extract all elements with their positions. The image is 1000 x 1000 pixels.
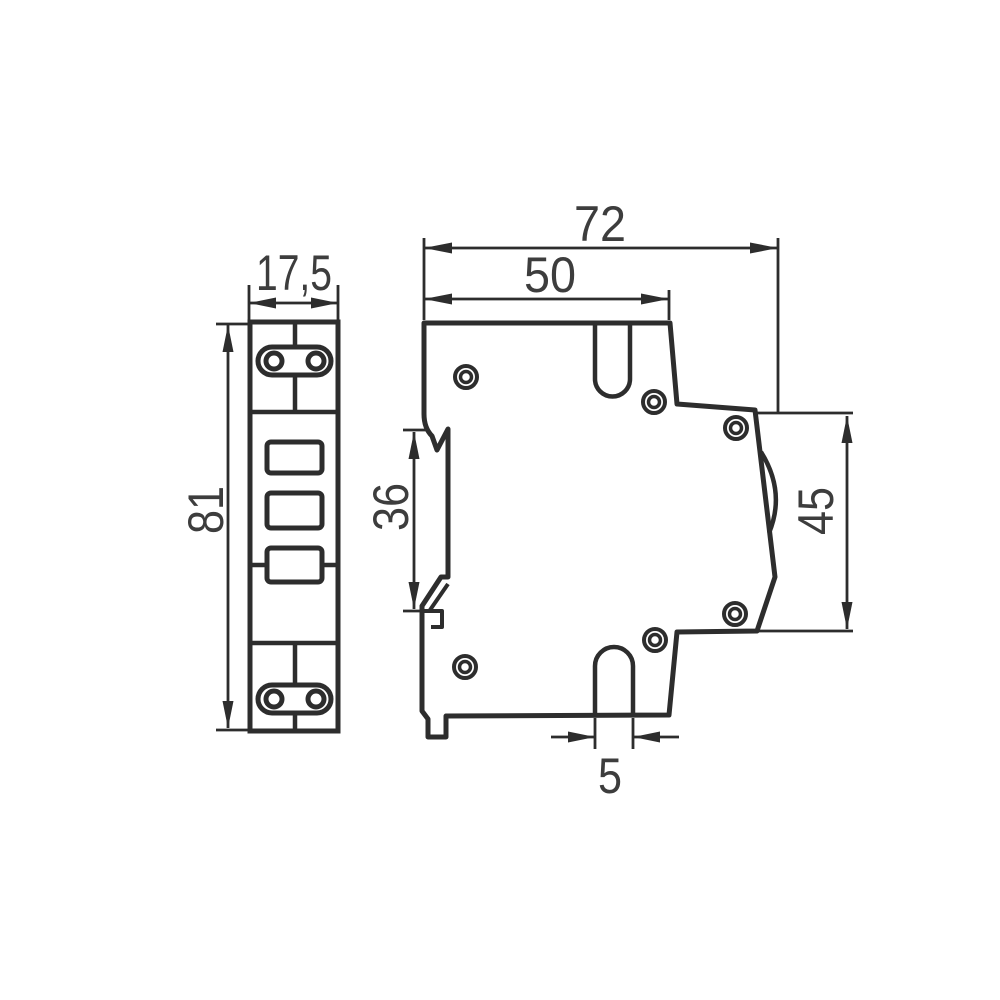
rivet-inner (730, 609, 741, 620)
rivet-inner (650, 635, 661, 646)
dim-slot-width: 5 (551, 718, 679, 804)
rivet-icon (724, 603, 746, 625)
technical-drawing: 17,5 81 72 50 (0, 0, 1000, 1000)
arrowhead (750, 243, 778, 254)
rivet-outer (644, 629, 666, 651)
side-view (422, 323, 776, 737)
rivet-outer (725, 417, 747, 439)
rivet-outer (643, 391, 665, 413)
rivet-inner (461, 372, 472, 383)
terminal-slot-icon (258, 685, 331, 713)
arrowhead (409, 582, 420, 609)
dim-rail-channel: 36 (363, 430, 427, 611)
dim-depth-upper: 50 (424, 247, 669, 320)
mounting-slot-bottom (595, 647, 633, 714)
arrowhead (223, 701, 234, 728)
terminal-screw-icon (266, 353, 282, 369)
terminal-top (258, 347, 331, 375)
rivet-icon (454, 656, 476, 678)
arrowhead (424, 294, 452, 305)
arrowhead (424, 243, 452, 254)
terminal-screw-icon (308, 691, 324, 707)
indicator-window (267, 442, 322, 473)
rivet-outer (454, 656, 476, 678)
dim-label-slot-width: 5 (598, 748, 622, 804)
dim-label-front-height: 81 (178, 486, 234, 534)
arrowhead (409, 432, 420, 459)
dim-label-depth-total: 72 (574, 196, 626, 252)
front-view (250, 322, 338, 731)
drawing-canvas: 17,5 81 72 50 (0, 0, 1000, 1000)
rivet-icon (725, 417, 747, 439)
arrowhead (633, 732, 660, 743)
rivet-icon (643, 391, 665, 413)
arrowhead (842, 416, 853, 443)
arrowhead (842, 602, 853, 629)
terminal-bottom (258, 685, 331, 713)
rivet-icon (644, 629, 666, 651)
rivet-outer (455, 366, 477, 388)
dim-label-depth-upper: 50 (524, 247, 576, 303)
terminal-slot-icon (258, 347, 331, 375)
dim-label-rear-height: 45 (788, 487, 844, 535)
rivet-inner (731, 423, 742, 434)
rivet-icon (455, 366, 477, 388)
arrowhead (641, 294, 669, 305)
arrowhead (568, 732, 595, 743)
terminal-screw-icon (308, 353, 324, 369)
dim-label-front-width: 17,5 (256, 245, 332, 301)
indicator-window (267, 548, 322, 582)
dim-front-width: 17,5 (249, 245, 338, 320)
rivet-outer (724, 603, 746, 625)
rivet-inner (460, 662, 471, 673)
rivet-inner (649, 397, 660, 408)
indicator-window (267, 493, 322, 528)
arrowhead (223, 325, 234, 352)
dim-front-height: 81 (178, 324, 250, 730)
mounting-slot-top (595, 325, 630, 397)
dim-label-rail-channel: 36 (363, 483, 419, 531)
terminal-screw-icon (266, 691, 282, 707)
din-latch-hook (424, 611, 442, 627)
